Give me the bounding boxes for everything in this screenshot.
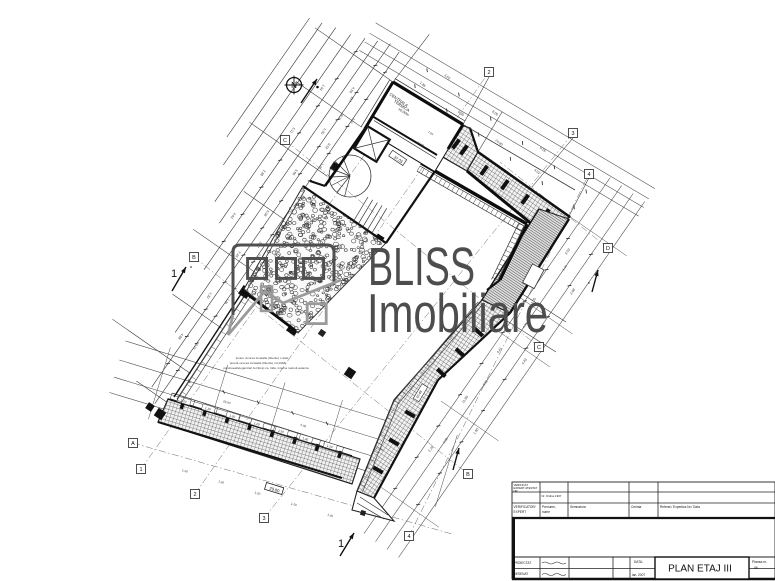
svg-text:B: B — [466, 472, 470, 478]
svg-text:EXPERT: EXPERT — [514, 510, 527, 514]
svg-text:Semnatura: Semnatura — [570, 505, 586, 509]
svg-text:2: 2 — [193, 492, 196, 498]
svg-text:C: C — [283, 138, 287, 144]
svg-text:06: 06 — [754, 566, 758, 570]
svg-text:Plansa nr.: Plansa nr. — [752, 560, 767, 564]
svg-text:pardoseallelegant/art ferritic: pardoseallelegant/art ferritica) ca. til… — [223, 366, 308, 370]
svg-text:DESENAT: DESENAT — [514, 572, 529, 576]
svg-text:3: 3 — [571, 131, 574, 137]
svg-text:DATA:: DATA: — [634, 560, 643, 564]
svg-text:Referat / Expertiza Nr./ Data: Referat / Expertiza Nr./ Data — [660, 505, 700, 509]
svg-text:4: 4 — [587, 172, 590, 178]
svg-text:1: 1 — [139, 467, 142, 473]
svg-text:C: C — [537, 345, 541, 351]
svg-text:Imobiliare: Imobiliare — [367, 282, 548, 344]
svg-text:VERIFICATOR/: VERIFICATOR/ — [514, 505, 536, 509]
svg-text:nume: nume — [542, 510, 550, 514]
svg-text:Prenume,: Prenume, — [542, 505, 556, 509]
svg-text:1: 1 — [171, 268, 177, 280]
svg-text:A: A — [131, 441, 135, 447]
svg-text:ian. 2007: ian. 2007 — [632, 573, 645, 577]
svg-text:D: D — [606, 246, 610, 252]
svg-text:4: 4 — [407, 534, 410, 540]
svg-text:NR.: NR. — [514, 489, 519, 493]
svg-text:Nr. Ordine 1997: Nr. Ordine 1997 — [542, 494, 562, 498]
svg-text:B: B — [192, 255, 196, 261]
svg-text:peretii-vicorea locatalla (fil: peretii-vicorea locatalla (filierite) cu… — [230, 361, 287, 365]
svg-text:N: N — [291, 81, 297, 90]
svg-text:locare vicorea locatalla (fili: locare vicorea locatalla (filierite) o a… — [236, 356, 289, 360]
svg-text:3: 3 — [262, 516, 265, 522]
svg-text:PLAN ETAJ III: PLAN ETAJ III — [668, 564, 732, 575]
svg-text:Cerinta: Cerinta — [631, 505, 642, 509]
svg-text:1: 1 — [338, 538, 344, 550]
svg-text:2: 2 — [487, 70, 490, 76]
svg-text:°: ° — [190, 265, 193, 273]
svg-text:PROIECTAT: PROIECTAT — [514, 561, 532, 565]
